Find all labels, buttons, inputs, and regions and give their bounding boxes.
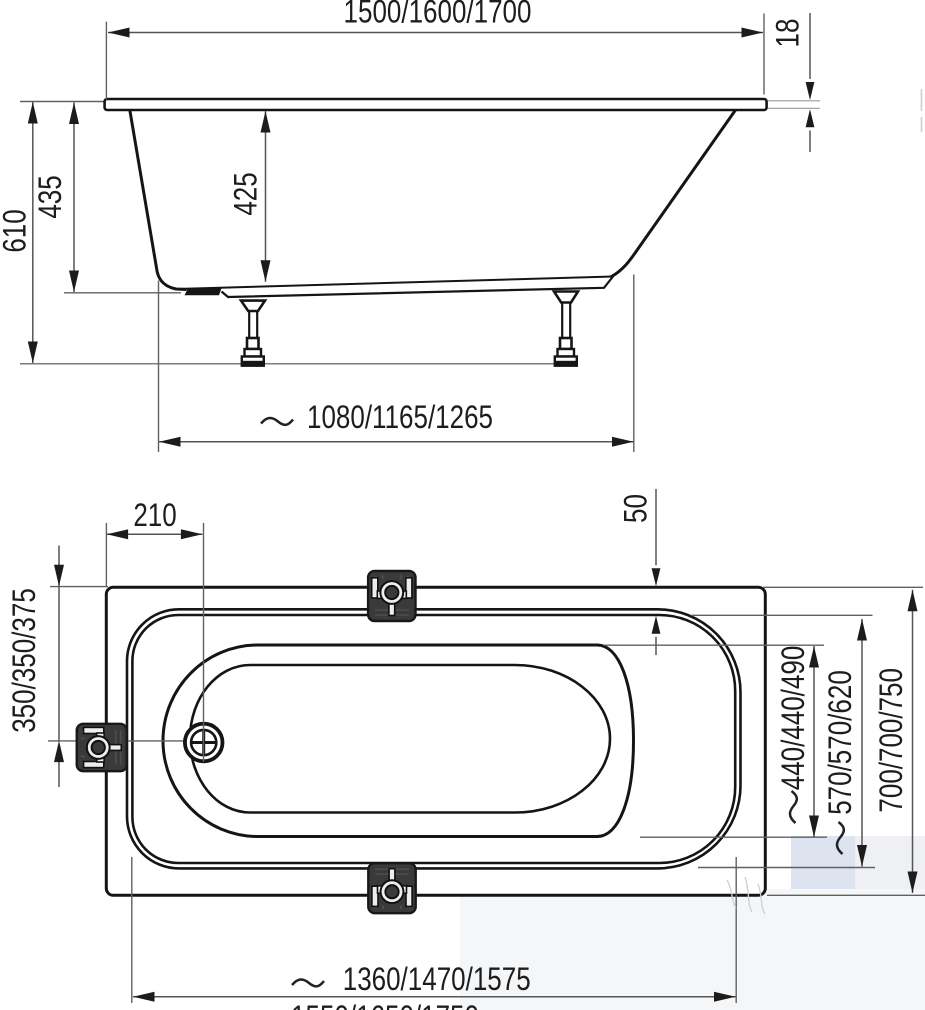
- svg-text:350/350/375: 350/350/375: [6, 588, 42, 733]
- svg-text:570/570/620: 570/570/620: [822, 670, 858, 815]
- svg-text:610: 610: [0, 209, 33, 252]
- svg-text:50: 50: [618, 494, 654, 523]
- svg-text:1550/1650/1750: 1550/1650/1750: [291, 999, 479, 1010]
- svg-text:1080/1165/1265: 1080/1165/1265: [307, 399, 493, 435]
- svg-text:425: 425: [228, 172, 264, 215]
- svg-text:1500/1600/1700: 1500/1600/1700: [344, 0, 532, 30]
- svg-text:1360/1470/1575: 1360/1470/1575: [343, 961, 531, 997]
- svg-text:18: 18: [770, 19, 806, 48]
- svg-text:440/440/490: 440/440/490: [775, 646, 811, 791]
- svg-text:700/700/750: 700/700/750: [873, 668, 909, 813]
- svg-text:210: 210: [133, 497, 176, 533]
- svg-text:435: 435: [32, 175, 68, 218]
